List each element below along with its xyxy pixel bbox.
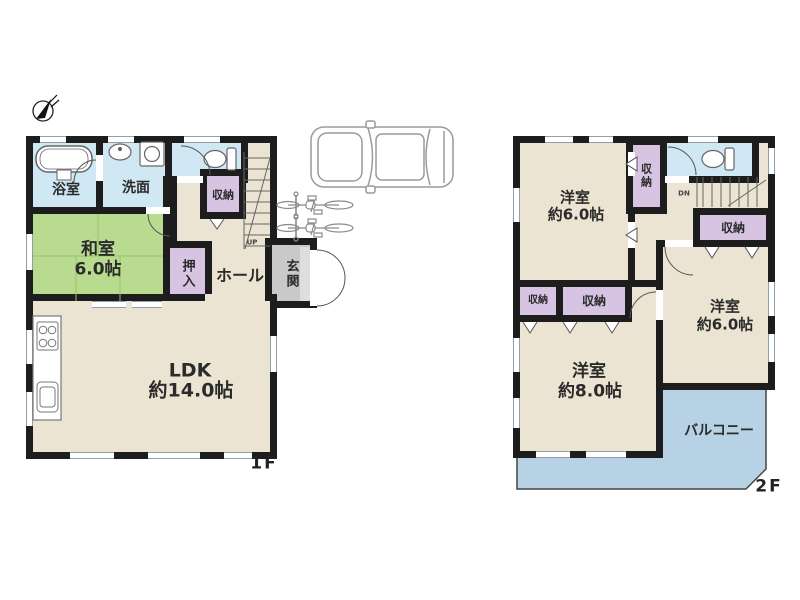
stairs-down-label: DN — [678, 191, 690, 198]
window — [26, 330, 33, 364]
window — [513, 188, 520, 222]
hall-notch — [177, 183, 200, 245]
storage-label: 収納 — [582, 295, 606, 307]
door-opening — [628, 152, 635, 176]
window — [586, 451, 626, 458]
car-icon — [311, 121, 453, 193]
window — [545, 136, 573, 143]
washroom-label: 洗面 — [122, 181, 150, 195]
bathroom-1f — [26, 136, 103, 214]
door-opening — [665, 176, 689, 183]
balcony-label: バルコニー — [684, 424, 754, 438]
window — [768, 148, 775, 174]
door-opening — [656, 290, 663, 320]
floorplan-canvas: 浴室 洗面 収納 和室 6.0帖 押入 ホール 玄関 UP LDK 約14.0帖… — [0, 0, 800, 600]
window — [108, 136, 134, 143]
window — [768, 282, 775, 316]
entrance-label: 玄関 — [285, 259, 298, 289]
floor2-label: 2F — [755, 479, 782, 496]
hall-label: ホール — [216, 268, 264, 284]
entrance-door-opening — [310, 250, 317, 306]
storage-label: 収納 — [721, 222, 745, 234]
window — [513, 398, 520, 428]
ldk-room — [26, 294, 277, 459]
window — [26, 234, 33, 270]
window — [536, 451, 570, 458]
window — [70, 452, 114, 459]
ldk-label: LDK — [169, 362, 212, 381]
window — [224, 452, 252, 459]
compass-icon — [33, 95, 59, 121]
window — [26, 392, 33, 426]
sliding-door — [92, 301, 126, 308]
bedroom-east-label: 洋室 — [710, 300, 740, 315]
washitsu-label: 和室 — [81, 242, 115, 259]
window — [148, 452, 200, 459]
storage-label: 収納 — [641, 163, 652, 189]
genkan-step — [300, 247, 310, 301]
window — [688, 136, 718, 143]
door-opening — [177, 176, 203, 183]
storage-label: 収納 — [212, 190, 234, 201]
floor1-label: 1F — [250, 456, 277, 473]
window — [40, 136, 66, 143]
washitsu-size: 6.0帖 — [74, 262, 121, 279]
window — [768, 334, 775, 362]
hall-ldk-opening — [205, 294, 265, 308]
bedroom-nw-size: 約6.0帖 — [548, 208, 605, 223]
bedroom-south-size: 約8.0帖 — [558, 384, 622, 401]
door-opening — [665, 240, 693, 247]
window — [589, 136, 613, 143]
window — [513, 338, 520, 372]
oshiire-label: 押入 — [181, 259, 194, 289]
window — [270, 336, 277, 372]
window — [184, 136, 220, 143]
bicycle-icon — [277, 192, 353, 218]
door-opening — [628, 222, 635, 248]
storage-label: 収納 — [528, 296, 548, 306]
stairs-up-label: UP — [247, 240, 258, 247]
bedroom-south-label: 洋室 — [572, 364, 606, 381]
bath-label: 浴室 — [52, 183, 80, 197]
ldk-size: 約14.0帖 — [149, 382, 234, 401]
door-opening — [96, 155, 103, 181]
bedroom-nw-label: 洋室 — [560, 191, 590, 206]
sliding-door — [132, 301, 162, 308]
door-opening — [146, 207, 170, 214]
bedroom-east-size: 約6.0帖 — [697, 318, 754, 333]
